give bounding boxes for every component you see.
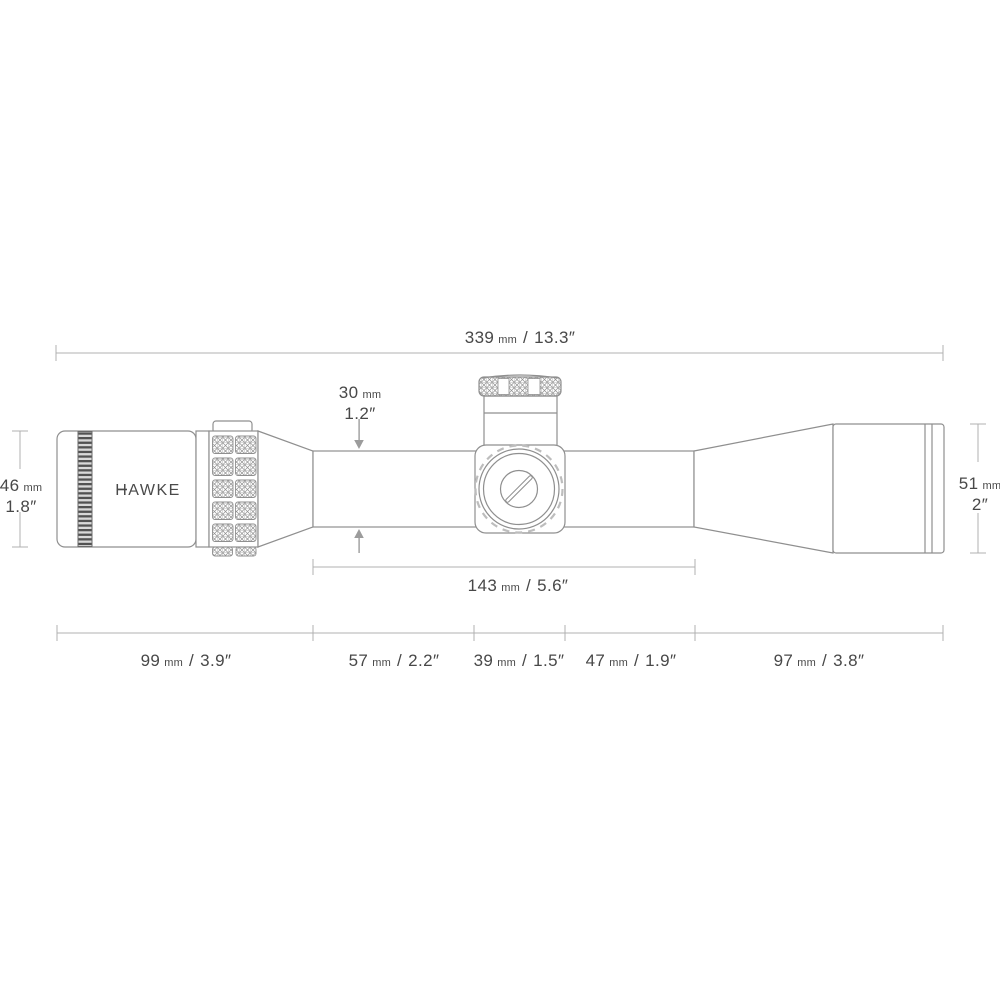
dim-label-segment-1: 99mm/3.9″ <box>141 651 232 671</box>
mm-unit: mm <box>501 582 520 594</box>
mm-unit: mm <box>164 657 183 669</box>
divider: / <box>634 651 639 670</box>
dim-label-saddle-span: 143mm/5.6″ <box>468 576 569 596</box>
diagram-canvas: HAWKE 339mm/13.3″ 30mm 1.2″ 46mm 1.8″ 51… <box>0 0 1000 1000</box>
segment-mm-value: 99 <box>141 651 161 670</box>
elevation-turret-cap <box>479 377 561 396</box>
eyepiece-collar <box>196 431 209 547</box>
elevation-turret <box>479 375 561 446</box>
objective-bell <box>833 424 944 553</box>
eyepiece-mm-value: 46 <box>0 476 19 495</box>
tube-inch-value: 1.2″ <box>344 404 375 423</box>
mm-unit: mm <box>372 657 391 669</box>
segment-inch-value: 1.5″ <box>533 651 564 670</box>
objective-mm-value: 51 <box>959 474 979 493</box>
eyepiece-taper <box>258 431 313 547</box>
dim-label-segment-2: 57mm/2.2″ <box>349 651 440 671</box>
elevation-turret-body <box>484 396 557 446</box>
mm-unit: mm <box>797 657 816 669</box>
mm-unit: mm <box>23 482 42 494</box>
dim-label-segment-5: 97mm/3.8″ <box>774 651 865 671</box>
saddle-span-mm-value: 143 <box>468 576 498 595</box>
overall-mm-value: 339 <box>465 328 495 347</box>
dim-label-segment-3: 39mm/1.5″ <box>474 651 565 671</box>
divider: / <box>526 576 531 595</box>
segment-inch-value: 3.9″ <box>200 651 231 670</box>
arrow-up-icon <box>354 529 364 553</box>
segment-inch-value: 1.9″ <box>645 651 676 670</box>
objective-inch-value: 2″ <box>972 495 988 514</box>
saddle-span-inch-value: 5.6″ <box>537 576 568 595</box>
dim-label-eyepiece: 46mm 1.8″ <box>0 477 42 516</box>
mm-unit: mm <box>982 480 1000 492</box>
elevation-turret-cap-gap <box>528 379 540 395</box>
segment-mm-value: 47 <box>586 651 606 670</box>
dim-label-overall: 339mm/13.3″ <box>465 328 576 348</box>
divider: / <box>822 651 827 670</box>
segment-inch-value: 2.2″ <box>408 651 439 670</box>
divider: / <box>523 328 528 347</box>
elevation-turret-cap-gap <box>498 379 509 395</box>
mm-unit: mm <box>497 657 516 669</box>
objective-taper <box>694 424 833 553</box>
scope-technical-drawing: HAWKE <box>0 0 1000 1000</box>
scope-body: HAWKE <box>57 375 944 556</box>
logo-text: HAWKE <box>115 482 181 499</box>
segment-mm-value: 57 <box>349 651 369 670</box>
divider: / <box>397 651 402 670</box>
arrow-down-icon <box>354 419 364 449</box>
mm-unit: mm <box>609 657 628 669</box>
diopter-ring <box>78 432 92 547</box>
divider: / <box>522 651 527 670</box>
dim-label-objective: 51mm 2″ <box>959 475 1000 514</box>
eyepiece-inch-value: 1.8″ <box>5 497 36 516</box>
brand-logo: HAWKE <box>115 482 181 499</box>
segment-mm-value: 39 <box>474 651 494 670</box>
dim-label-tube: 30mm 1.2″ <box>339 384 381 423</box>
dim-label-segment-4: 47mm/1.9″ <box>586 651 677 671</box>
zoom-ring-tab <box>236 547 256 556</box>
dim-bottom-line <box>57 625 943 641</box>
overall-inch-value: 13.3″ <box>534 328 575 347</box>
mm-unit: mm <box>362 389 381 401</box>
segment-inch-value: 3.8″ <box>833 651 864 670</box>
tube-mm-value: 30 <box>339 383 359 402</box>
dim-saddle-span-line <box>313 559 695 575</box>
divider: / <box>189 651 194 670</box>
mm-unit: mm <box>498 334 517 346</box>
segment-mm-value: 97 <box>774 651 794 670</box>
zoom-ring-tab <box>213 547 233 556</box>
